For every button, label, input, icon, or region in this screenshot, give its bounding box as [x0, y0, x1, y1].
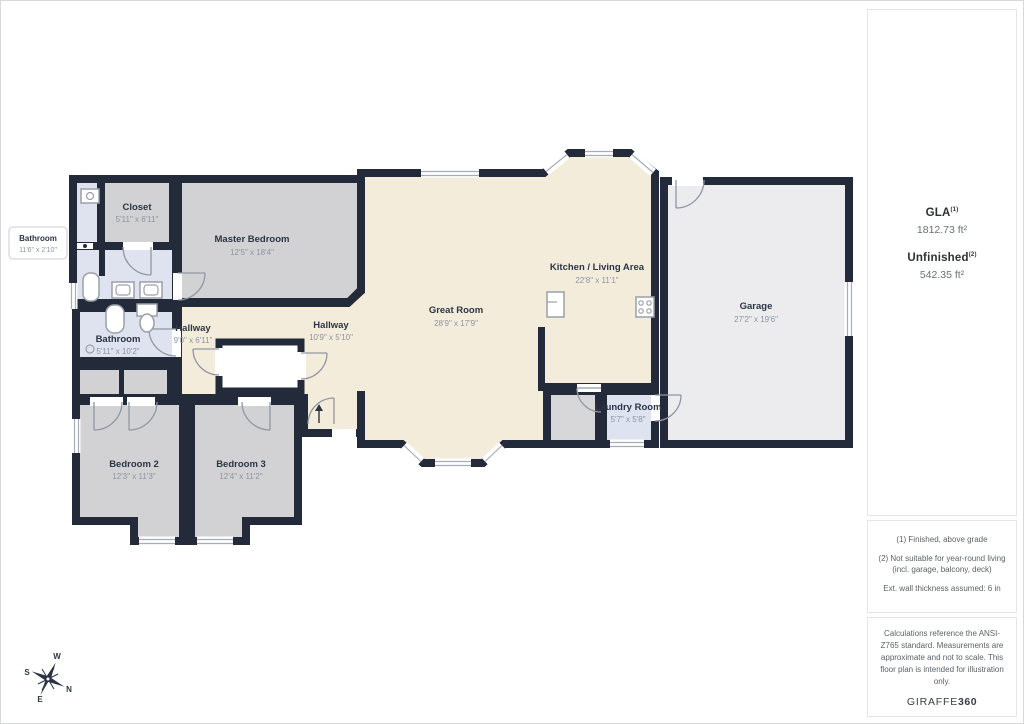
- footnotes-panel: (1) Finished, above grade (2) Not suitab…: [867, 520, 1017, 613]
- footnote-wall-thickness: Ext. wall thickness assumed: 6 in: [876, 583, 1008, 595]
- unfinished-label: Unfinished(2): [868, 252, 1016, 264]
- gla-footnote-marker: (1): [950, 207, 958, 213]
- label-kitchen: Kitchen / Living Area: [550, 262, 645, 273]
- room-storage: [547, 391, 599, 444]
- disclaimer-text: Calculations reference the ANSI-Z765 sta…: [875, 628, 1009, 688]
- dims-bathroom-strip: 11'6" x 2'10": [19, 247, 57, 254]
- room-bedroom-3: [191, 401, 298, 541]
- dims-master-bedroom: 12'5" x 18'4": [230, 248, 274, 257]
- rooms-layer: [73, 153, 849, 541]
- compass-south: S: [24, 668, 30, 677]
- dims-bathroom: 5'11" x 10'2": [96, 347, 139, 356]
- dims-great-room: 28'9" x 17'9": [434, 319, 478, 328]
- dims-garage: 27'2" x 19'6": [734, 315, 778, 324]
- room-garage: [664, 181, 849, 444]
- dims-bedroom-2: 12'3" x 11'3": [112, 472, 155, 481]
- area-summary-panel: GLA(1) 1812.73 ft² Unfinished(2) 542.35 …: [867, 9, 1017, 516]
- label-great-room: Great Room: [429, 305, 483, 316]
- disclaimer-panel: Calculations reference the ANSI-Z765 sta…: [867, 617, 1017, 717]
- compass-north: N: [66, 685, 72, 694]
- gla-label: GLA(1): [868, 207, 1016, 219]
- unfinished-value: 542.35 ft²: [868, 269, 1016, 281]
- label-master-bedroom: Master Bedroom: [215, 234, 290, 245]
- compass-rose: W S N E: [24, 652, 72, 704]
- floor-plan-page: Closet 5'11" x 6'11" Master Bedroom 12'5…: [0, 0, 1024, 724]
- label-bathroom: Bathroom: [96, 334, 141, 345]
- dims-bedroom-3: 12'4" x 11'2": [219, 472, 262, 481]
- compass-east: E: [37, 695, 43, 704]
- footnote-2: (2) Not suitable for year-round living (…: [876, 553, 1008, 576]
- dims-closet: 5'11" x 6'11": [116, 215, 159, 224]
- stove-icon: [636, 297, 654, 317]
- fridge-icon: [547, 292, 564, 317]
- label-bedroom-2: Bedroom 2: [109, 459, 159, 470]
- footnote-1: (1) Finished, above grade: [876, 534, 1008, 546]
- label-garage: Garage: [740, 301, 773, 312]
- external-bathroom-callout: Bathroom 11'6" x 2'10": [9, 227, 67, 259]
- dims-hallway-2: 10'9" x 5'10": [309, 333, 353, 342]
- label-closet: Closet: [122, 202, 152, 213]
- label-hallway-2: Hallway: [313, 320, 349, 331]
- room-center-closet: [219, 342, 301, 391]
- sink-icon: [81, 189, 99, 203]
- label-laundry: Laundry Room: [594, 402, 661, 413]
- floor-plan-drawing: Closet 5'11" x 6'11" Master Bedroom 12'5…: [1, 1, 871, 723]
- giraffe360-logo: GIRAFFE360: [875, 696, 1009, 708]
- label-bedroom-3: Bedroom 3: [216, 459, 266, 470]
- bathtub-icon: [106, 305, 124, 333]
- info-sidebar: GLA(1) 1812.73 ft² Unfinished(2) 542.35 …: [867, 9, 1017, 717]
- unfinished-footnote-marker: (2): [969, 252, 977, 258]
- dims-hallway-1: 9'0" x 6'11": [174, 336, 213, 345]
- dims-laundry: 5'7" x 5'8": [611, 415, 646, 424]
- dims-kitchen: 22'8" x 11'1": [575, 276, 618, 285]
- bathtub-icon: [83, 273, 99, 301]
- compass-west: W: [53, 652, 61, 661]
- label-bathroom-strip: Bathroom: [19, 234, 57, 243]
- label-hallway-1: Hallway: [175, 323, 211, 334]
- gla-value: 1812.73 ft²: [868, 224, 1016, 236]
